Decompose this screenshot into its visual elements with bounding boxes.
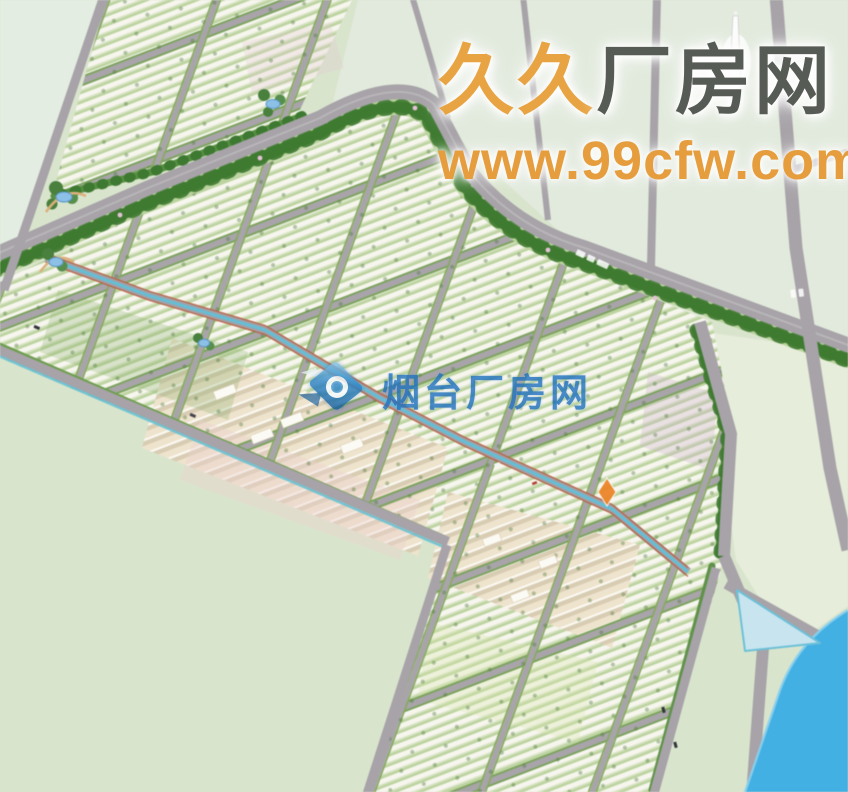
blossom-tree bbox=[653, 296, 658, 301]
blossom-tree bbox=[546, 248, 551, 253]
blossom-tree bbox=[118, 213, 123, 218]
site-plan-map bbox=[0, 0, 848, 792]
blossom-tree bbox=[258, 156, 263, 161]
master-plan-canvas: 烟台厂房网 久久厂房网 www.99cfw.com bbox=[0, 0, 848, 792]
blossom-tree bbox=[413, 106, 418, 111]
